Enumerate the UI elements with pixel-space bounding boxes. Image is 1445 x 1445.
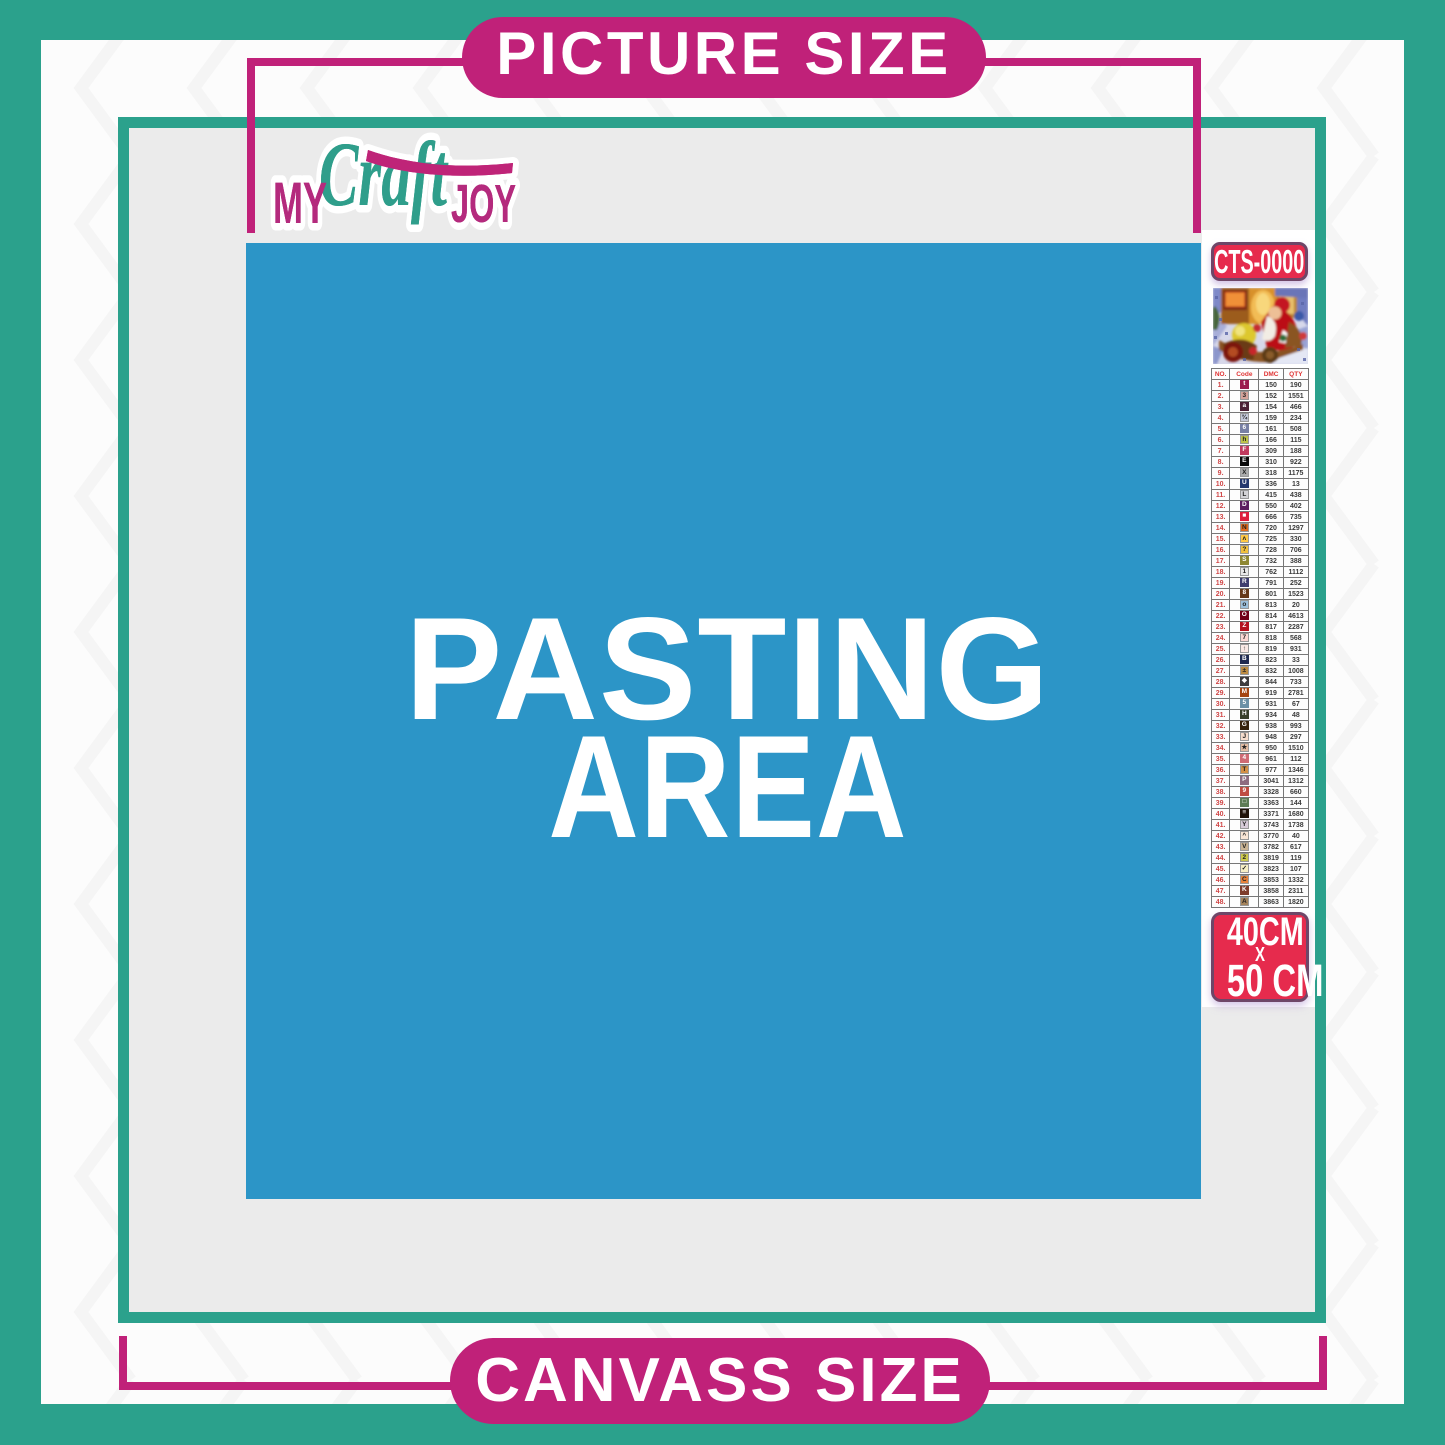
svg-text:MY: MY xyxy=(273,171,327,236)
svg-text:JOY: JOY xyxy=(451,174,516,234)
